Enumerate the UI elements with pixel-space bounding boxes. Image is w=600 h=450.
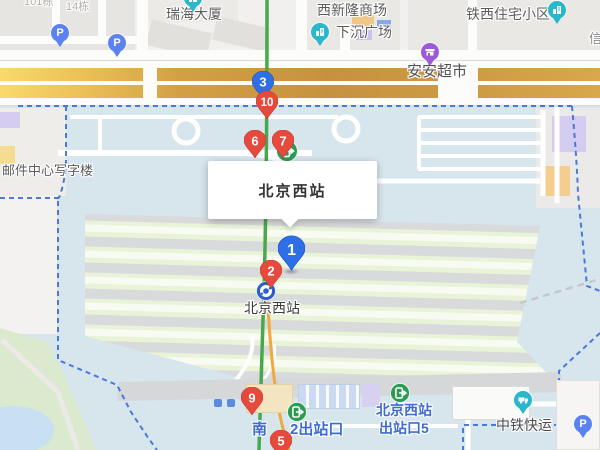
marker-5[interactable]: 5 [270, 430, 292, 450]
parking-icon[interactable]: P [574, 415, 592, 433]
svg-text:5: 5 [277, 434, 284, 449]
building-block [298, 384, 360, 409]
label-tiexi-residential: 铁西住宅小区 [466, 7, 550, 22]
label-south-exit-suffix: 2出站口 [290, 422, 343, 439]
svg-text:1: 1 [287, 242, 296, 259]
supermarket-poi-icon[interactable] [421, 43, 439, 61]
parking-icon[interactable]: P [51, 24, 69, 42]
marker-9[interactable]: 9 [241, 387, 263, 415]
railway-express-poi-icon[interactable] [514, 391, 532, 409]
label-building-101: 101栋 [24, 0, 53, 8]
label-xixinlong-mall: 西新隆商场 [317, 3, 387, 18]
label-china-railway-express: 中铁快运 [496, 418, 552, 433]
label-xin-partial: 信 [589, 32, 600, 46]
building-icon [188, 0, 198, 3]
info-window-title: 北京西站 [208, 161, 377, 219]
exit-icon[interactable] [390, 383, 410, 403]
building-icon [552, 5, 562, 15]
label-building-14: 14栋 [66, 1, 89, 13]
tiexi-poi-icon[interactable] [548, 1, 566, 19]
facility-icon [214, 399, 222, 407]
label-south-exit-prefix: 南 [252, 422, 267, 439]
marker-2[interactable]: 2 [260, 260, 282, 288]
label-subway-station: 北京西站 [244, 301, 300, 316]
svg-text:6: 6 [251, 134, 258, 149]
svg-text:10: 10 [261, 97, 274, 109]
exit-icon[interactable] [287, 402, 307, 422]
building-icon [315, 27, 325, 37]
railway-platforms [85, 214, 563, 390]
truck-icon [518, 395, 529, 405]
marker-1[interactable]: 1 [278, 235, 305, 271]
map-canvas[interactable]: 14栋 101栋 瑞海大厦 西新隆商场 下沉广场 铁西住宅小区 信 安安超市 邮… [0, 0, 600, 450]
svg-text:2: 2 [267, 264, 274, 279]
rail-track [520, 279, 600, 303]
label-anan-supermarket: 安安超市 [407, 64, 467, 81]
svg-text:9: 9 [248, 391, 255, 406]
label-exit5-line1: 北京西站 [376, 403, 432, 418]
shop-icon [425, 47, 435, 57]
marker-10[interactable]: 10 [256, 91, 278, 119]
label-sunken-plaza: 下沉广场 [336, 25, 392, 40]
svg-text:7: 7 [279, 134, 286, 149]
label-exit5-line2: 出站口5 [379, 421, 429, 436]
facility-icon [227, 399, 235, 407]
marker-7[interactable]: 7 [272, 130, 294, 158]
label-mail-center: 邮件中心写字楼 [2, 164, 93, 178]
parking-icon[interactable]: P [108, 34, 126, 52]
svg-text:3: 3 [259, 75, 266, 90]
info-window[interactable]: 北京西站 [208, 161, 377, 219]
sunken-plaza-poi-icon[interactable] [311, 23, 329, 41]
map-vector-layer [0, 0, 600, 450]
marker-6[interactable]: 6 [244, 130, 266, 158]
